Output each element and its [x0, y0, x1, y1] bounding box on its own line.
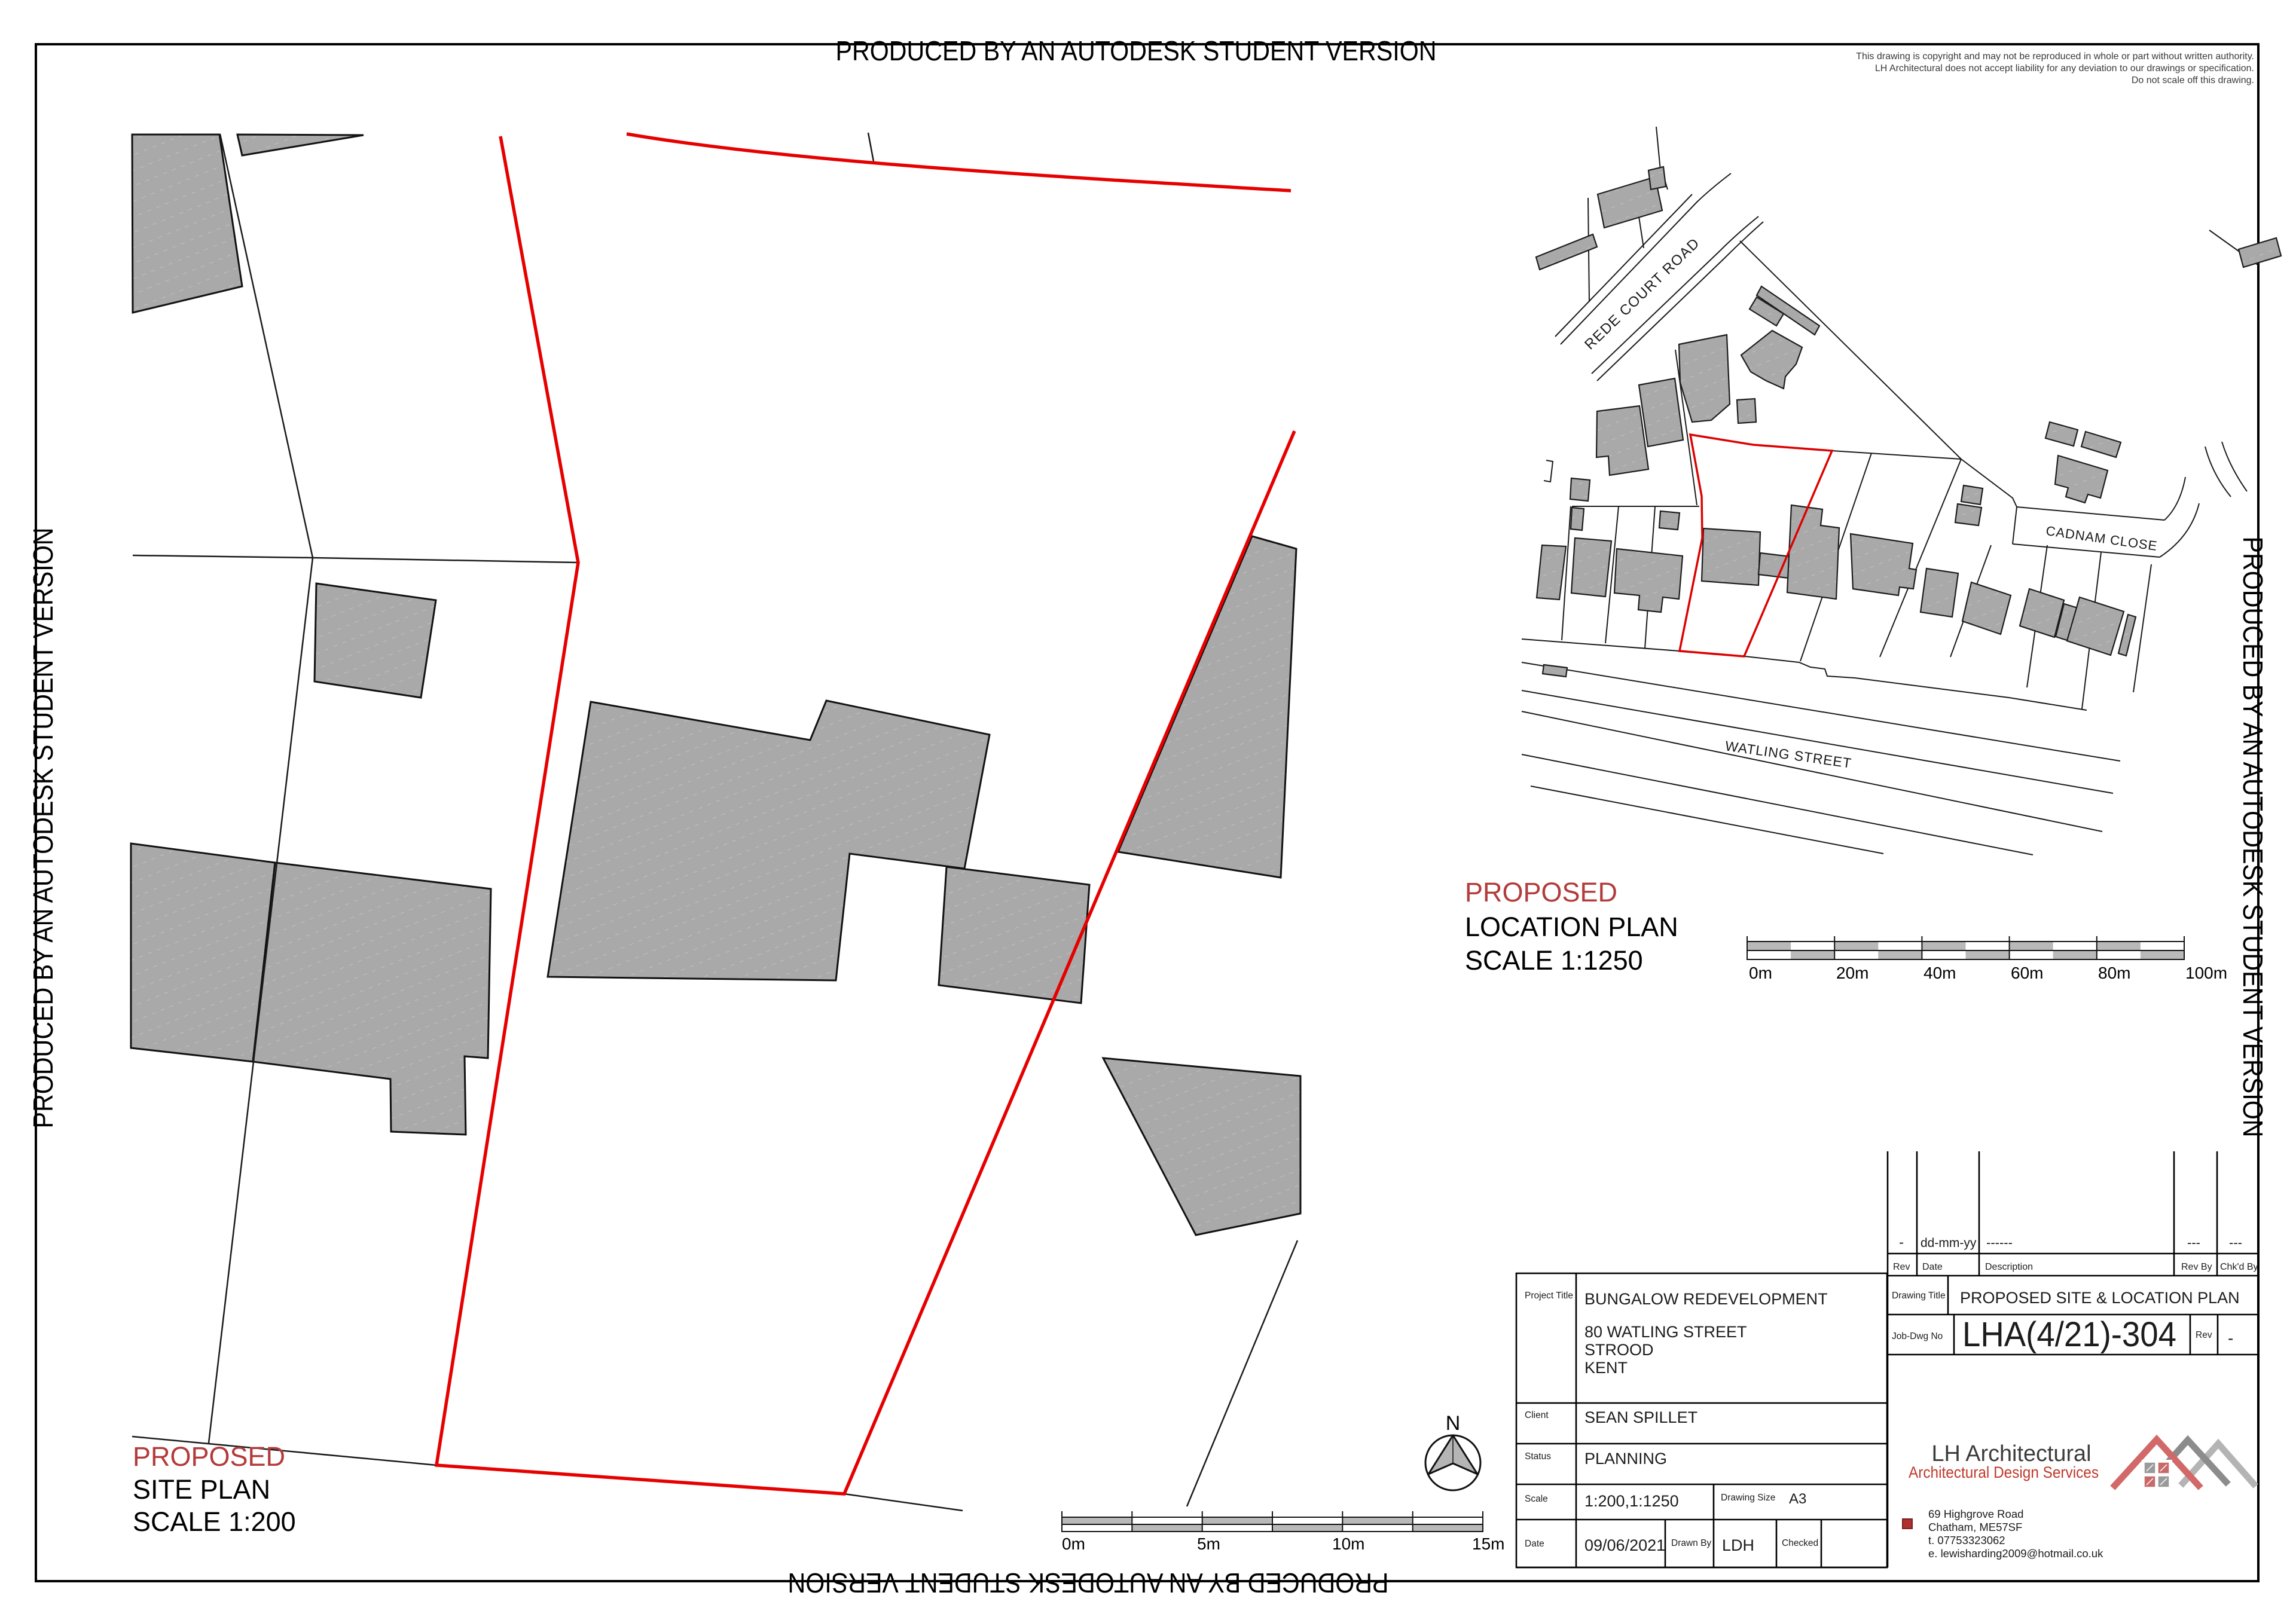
svg-text:-: - [1899, 1234, 1904, 1251]
svg-text:Scale: Scale [1525, 1494, 1548, 1504]
svg-text:SCALE 1:200: SCALE 1:200 [133, 1506, 296, 1537]
svg-text:Status: Status [1525, 1451, 1551, 1462]
svg-text:1:200,1:1250: 1:200,1:1250 [1584, 1492, 1679, 1510]
svg-text:LH Architectural does not acce: LH Architectural does not accept liabili… [1875, 63, 2254, 74]
svg-text:This drawing is copyright and: This drawing is copyright and may not be… [1856, 51, 2254, 62]
svg-text:09/06/2021: 09/06/2021 [1584, 1536, 1665, 1554]
svg-text:Date: Date [1525, 1539, 1544, 1549]
svg-text:15m: 15m [1472, 1535, 1504, 1553]
svg-text:---: --- [2187, 1235, 2200, 1250]
svg-text:BUNGALOW REDEVELOPMENT: BUNGALOW REDEVELOPMENT [1584, 1290, 1828, 1308]
svg-text:Drawing Title: Drawing Title [1892, 1291, 1946, 1301]
svg-text:Checked: Checked [1782, 1538, 1818, 1548]
svg-text:Drawing Size: Drawing Size [1721, 1493, 1775, 1503]
svg-text:Description: Description [1985, 1262, 2033, 1272]
svg-text:PRODUCED BY AN AUTODESK STUDEN: PRODUCED BY AN AUTODESK STUDENT VERSION [836, 35, 1437, 66]
svg-text:Rev By: Rev By [2181, 1262, 2212, 1272]
svg-text:e. lewisharding2009@hotmail.co: e. lewisharding2009@hotmail.co.uk [1928, 1547, 2103, 1560]
svg-text:PRODUCED BY AN AUTODESK STUDEN: PRODUCED BY AN AUTODESK STUDENT VERSION [788, 1567, 1389, 1598]
svg-text:Client: Client [1525, 1410, 1549, 1420]
svg-text:Rev: Rev [1893, 1262, 1910, 1272]
svg-text:KENT: KENT [1584, 1359, 1628, 1377]
svg-text:---: --- [2229, 1235, 2242, 1250]
svg-text:100m: 100m [2185, 964, 2227, 982]
svg-text:Job-Dwg No: Job-Dwg No [1892, 1331, 1943, 1341]
svg-text:Rev: Rev [2196, 1330, 2212, 1340]
svg-text:Chatham, ME57SF: Chatham, ME57SF [1928, 1521, 2022, 1533]
svg-text:LH Architectural: LH Architectural [1932, 1441, 2092, 1466]
svg-text:60m: 60m [2011, 964, 2043, 982]
svg-text:PRODUCED BY AN AUTODESK STUDEN: PRODUCED BY AN AUTODESK STUDENT VERSION [2237, 537, 2268, 1138]
svg-text:Date: Date [1922, 1262, 1943, 1272]
svg-text:REDE COURT ROAD: REDE COURT ROAD [1581, 235, 1703, 353]
svg-text:CADNAM CLOSE: CADNAM CLOSE [2045, 523, 2158, 554]
svg-text:-: - [2228, 1329, 2233, 1347]
svg-text:Chk'd By: Chk'd By [2220, 1262, 2258, 1272]
svg-text:PLANNING: PLANNING [1584, 1450, 1667, 1468]
svg-text:0m: 0m [1062, 1535, 1085, 1553]
svg-text:LHA(4/21)-304: LHA(4/21)-304 [1962, 1315, 2176, 1354]
svg-text:Drawn By: Drawn By [1671, 1538, 1711, 1548]
svg-text:SCALE 1:1250: SCALE 1:1250 [1465, 945, 1643, 976]
svg-text:80m: 80m [2098, 964, 2130, 982]
svg-text:5m: 5m [1197, 1535, 1220, 1553]
svg-text:Architectural Design Services: Architectural Design Services [1909, 1463, 2099, 1481]
svg-text:69 Highgrove Road: 69 Highgrove Road [1928, 1508, 2023, 1520]
svg-text:SITE PLAN: SITE PLAN [133, 1474, 270, 1505]
svg-text:LDH: LDH [1722, 1536, 1754, 1554]
svg-text:LOCATION PLAN: LOCATION PLAN [1465, 912, 1678, 942]
svg-text:N: N [1446, 1412, 1461, 1435]
svg-text:SEAN SPILLET: SEAN SPILLET [1584, 1408, 1697, 1426]
svg-text:80 WATLING STREET: 80 WATLING STREET [1584, 1323, 1747, 1341]
svg-text:PROPOSED SITE & LOCATION PLAN: PROPOSED SITE & LOCATION PLAN [1960, 1289, 2240, 1307]
svg-text:A3: A3 [1789, 1491, 1806, 1507]
svg-text:0m: 0m [1749, 964, 1772, 982]
svg-text:Project Title: Project Title [1525, 1291, 1573, 1301]
svg-text:PROPOSED: PROPOSED [1465, 877, 1617, 907]
svg-text:40m: 40m [1923, 964, 1956, 982]
svg-text:t. 07753323062: t. 07753323062 [1928, 1534, 2005, 1546]
svg-text:STROOD: STROOD [1584, 1341, 1654, 1359]
svg-text:PRODUCED BY AN AUTODESK STUDEN: PRODUCED BY AN AUTODESK STUDENT VERSION [28, 528, 59, 1129]
svg-text:------: ------ [1986, 1235, 2013, 1250]
svg-text:20m: 20m [1836, 964, 1868, 982]
svg-text:PROPOSED: PROPOSED [133, 1441, 285, 1472]
svg-text:10m: 10m [1332, 1535, 1364, 1553]
svg-text:Do not scale off this drawing.: Do not scale off this drawing. [2132, 75, 2254, 85]
svg-text:dd-mm-yy: dd-mm-yy [1921, 1236, 1977, 1250]
